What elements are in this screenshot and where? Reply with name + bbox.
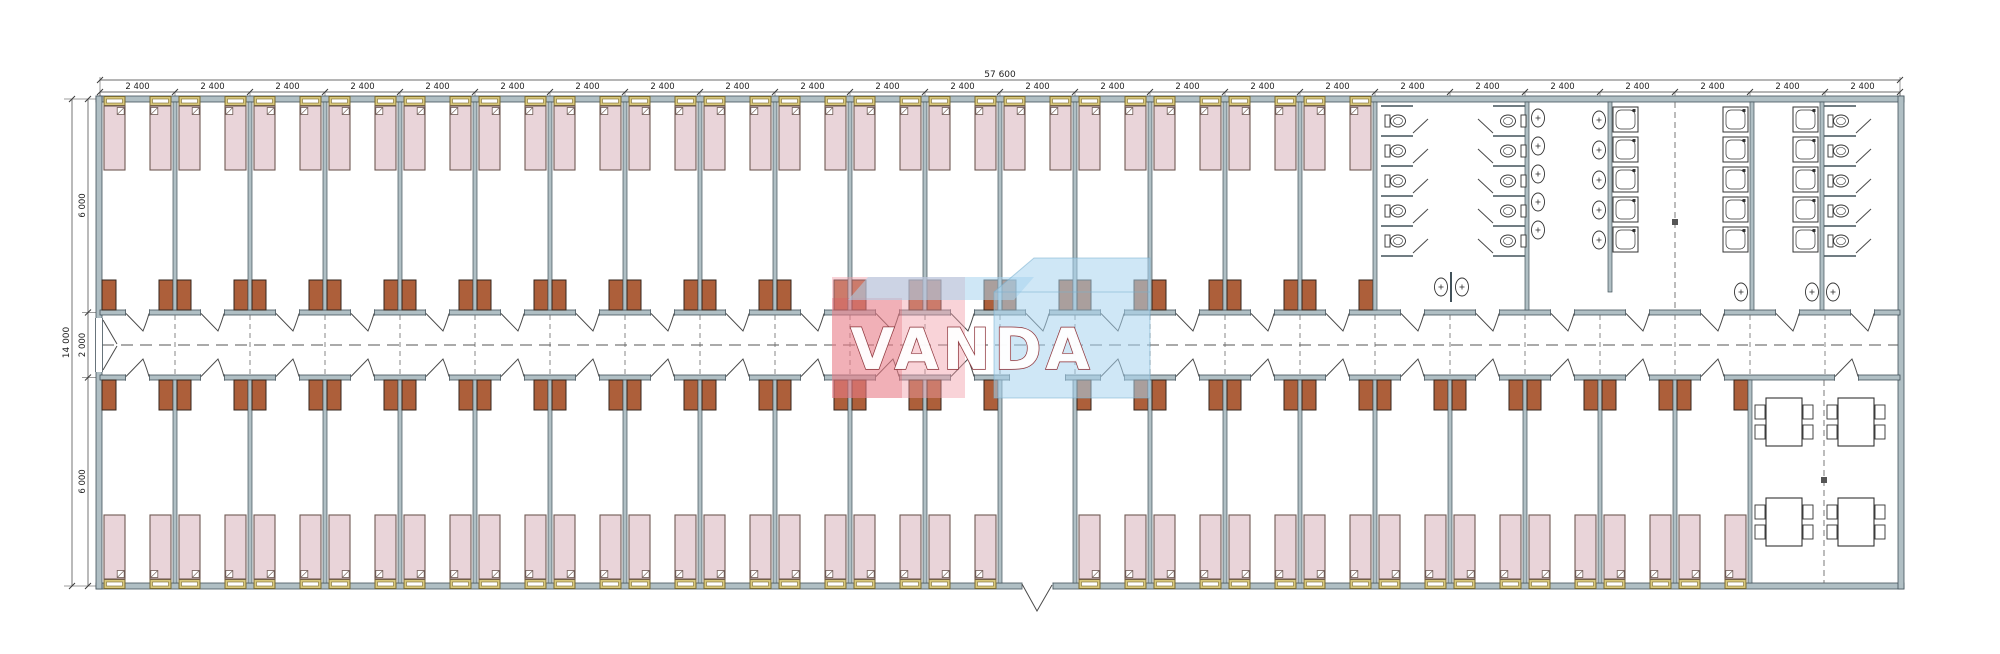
bed-icon bbox=[104, 515, 125, 579]
wardrobe-icon bbox=[552, 280, 566, 310]
washbasin-icon bbox=[1593, 201, 1606, 219]
shower-icon bbox=[1723, 167, 1748, 192]
bed-icon bbox=[554, 515, 575, 579]
stall-door-icon bbox=[1856, 119, 1871, 133]
bed-icon bbox=[450, 106, 471, 170]
partition-wall bbox=[173, 102, 177, 310]
bed-icon bbox=[975, 515, 996, 579]
bedroom-module bbox=[1377, 359, 1448, 589]
washbasin-icon bbox=[1532, 193, 1545, 211]
bed-icon bbox=[104, 106, 125, 170]
partition-wall bbox=[1298, 102, 1302, 310]
bedroom-module bbox=[402, 359, 473, 589]
bed-icon bbox=[179, 515, 200, 579]
shower-icon bbox=[1793, 197, 1818, 222]
bay-dimension-label: 2 400 bbox=[725, 82, 749, 92]
bed-icon bbox=[675, 515, 696, 579]
shower-icon bbox=[1613, 167, 1638, 192]
bed-icon bbox=[1154, 106, 1175, 170]
height-segment-dimension-label: 2 000 bbox=[78, 333, 88, 357]
bedroom-module bbox=[1298, 97, 1373, 332]
bed-icon bbox=[404, 515, 425, 579]
door-swing-icon bbox=[1326, 359, 1350, 381]
partition-wall bbox=[173, 380, 177, 583]
door-swing-icon bbox=[276, 359, 300, 381]
washbasin-icon bbox=[1456, 278, 1469, 296]
washbasin-icon bbox=[1806, 283, 1819, 301]
bed-icon bbox=[1604, 515, 1625, 579]
dining-table-icon bbox=[1755, 398, 1813, 446]
wardrobe-icon bbox=[777, 380, 791, 410]
bedroom-module bbox=[102, 97, 173, 332]
wardrobe-icon bbox=[702, 280, 716, 310]
bedroom-module bbox=[698, 97, 773, 332]
bed-icon bbox=[1650, 515, 1671, 579]
bedroom-module bbox=[702, 359, 773, 589]
bed-icon bbox=[1379, 515, 1400, 579]
wardrobe-icon bbox=[1452, 380, 1466, 410]
bedroom-module bbox=[327, 359, 398, 589]
bedroom-module bbox=[1302, 359, 1373, 589]
toilet-icon bbox=[1828, 115, 1849, 127]
overall-height-dimension-label: 14 000 bbox=[62, 326, 72, 358]
bed-icon bbox=[1229, 515, 1250, 579]
bed-icon bbox=[254, 515, 275, 579]
shower-icon bbox=[1793, 227, 1818, 252]
washbasin-icon bbox=[1532, 109, 1545, 127]
wardrobe-icon bbox=[1377, 380, 1391, 410]
bay-dimension-label: 2 400 bbox=[800, 82, 824, 92]
bed-icon bbox=[1079, 515, 1100, 579]
partition-wall bbox=[548, 102, 552, 310]
bedroom-module bbox=[1677, 359, 1748, 589]
wardrobe-icon bbox=[1227, 280, 1241, 310]
door-swing-icon bbox=[1401, 359, 1425, 381]
partition-wall bbox=[473, 102, 477, 310]
wardrobe-icon bbox=[459, 280, 473, 310]
bedroom-module bbox=[1452, 359, 1523, 589]
bedroom-module bbox=[552, 359, 623, 589]
bay-dimension-label: 2 400 bbox=[200, 82, 224, 92]
door-swing-icon bbox=[1626, 359, 1650, 381]
wardrobe-icon bbox=[1677, 380, 1691, 410]
exterior-wall-top bbox=[96, 96, 1904, 102]
partition-wall bbox=[773, 102, 777, 310]
floor-plan-drawing: 57 6002 4002 4002 4002 4002 4002 4002 40… bbox=[0, 0, 2000, 654]
wardrobe-icon bbox=[234, 280, 248, 310]
washbasin-icon bbox=[1532, 221, 1545, 239]
stall-door-icon bbox=[1478, 209, 1493, 223]
bedroom-module bbox=[173, 97, 248, 332]
bed-icon bbox=[1425, 515, 1446, 579]
washbasin-icon bbox=[1593, 171, 1606, 189]
bedroom-module bbox=[1152, 359, 1223, 589]
wardrobe-icon bbox=[477, 280, 491, 310]
stall-door-icon bbox=[1478, 149, 1493, 163]
dining-table-icon bbox=[1827, 398, 1885, 446]
shower-icon bbox=[1793, 107, 1818, 132]
toilet-icon bbox=[1385, 145, 1406, 157]
overall-width-dimension-label: 57 600 bbox=[984, 70, 1016, 80]
sanitary-block bbox=[1381, 102, 1875, 331]
bed-icon bbox=[1529, 515, 1550, 579]
wardrobe-icon bbox=[777, 280, 791, 310]
partition-wall bbox=[1223, 380, 1227, 583]
door-swing-icon bbox=[1476, 359, 1500, 381]
shower-icon bbox=[1613, 197, 1638, 222]
toilet-icon bbox=[1385, 115, 1406, 127]
chair-icon bbox=[1827, 405, 1837, 419]
wardrobe-icon bbox=[1209, 380, 1223, 410]
washbasin-icon bbox=[1593, 141, 1606, 159]
bedroom-module bbox=[1227, 359, 1298, 589]
door-swing-icon bbox=[351, 309, 375, 331]
door-swing-icon bbox=[801, 359, 825, 381]
stall-door-icon bbox=[1856, 179, 1871, 193]
bed-icon bbox=[600, 515, 621, 579]
door-swing-icon bbox=[1176, 359, 1200, 381]
door-swing-icon bbox=[651, 359, 675, 381]
partition-wall bbox=[473, 380, 477, 583]
stall-door-icon bbox=[1478, 239, 1493, 253]
dining-table-icon bbox=[1755, 498, 1813, 546]
bedroom-module bbox=[627, 359, 698, 589]
bay-dimension-label: 2 400 bbox=[500, 82, 524, 92]
toilet-icon bbox=[1828, 145, 1849, 157]
bay-dimension-label: 2 400 bbox=[1325, 82, 1349, 92]
wardrobe-icon bbox=[477, 380, 491, 410]
door-swing-icon bbox=[1551, 359, 1575, 381]
chair-icon bbox=[1827, 425, 1837, 439]
partition-wall bbox=[1673, 380, 1677, 583]
bay-dimension-label: 2 400 bbox=[1175, 82, 1199, 92]
door-swing-icon bbox=[576, 359, 600, 381]
bed-icon bbox=[375, 106, 396, 170]
stall-door-icon bbox=[1478, 119, 1493, 133]
top-bedrooms bbox=[102, 97, 1377, 332]
bed-icon bbox=[900, 515, 921, 579]
left-dimensions: 14 0006 0002 0006 000 bbox=[62, 96, 100, 589]
bay-dimension-label: 2 400 bbox=[350, 82, 374, 92]
wardrobe-icon bbox=[1227, 380, 1241, 410]
shower-icon bbox=[1793, 167, 1818, 192]
stall-door-icon bbox=[1413, 209, 1428, 223]
door-swing-icon bbox=[1776, 309, 1800, 331]
door-swing-icon bbox=[201, 359, 225, 381]
door-swing-icon bbox=[1851, 309, 1875, 331]
wardrobe-icon bbox=[1584, 380, 1598, 410]
wardrobe-icon bbox=[1359, 380, 1373, 410]
height-segment-dimension-label: 6 000 bbox=[78, 193, 88, 217]
toilet-icon bbox=[1385, 175, 1406, 187]
door-swing-icon bbox=[1326, 309, 1350, 331]
door-swing-icon bbox=[801, 309, 825, 331]
bed-icon bbox=[1200, 515, 1221, 579]
partition-wall bbox=[248, 102, 252, 310]
washbasin-icon bbox=[1827, 283, 1840, 301]
wardrobe-icon bbox=[177, 380, 191, 410]
bed-icon bbox=[1454, 515, 1475, 579]
wardrobe-icon bbox=[1509, 380, 1523, 410]
dining-table-icon bbox=[1827, 498, 1885, 546]
door-swing-icon bbox=[576, 309, 600, 331]
bed-icon bbox=[225, 106, 246, 170]
bedroom-module bbox=[1602, 359, 1673, 589]
bed-icon bbox=[750, 515, 771, 579]
washbasin-icon bbox=[1593, 111, 1606, 129]
bay-dimension-label: 2 400 bbox=[275, 82, 299, 92]
stall-door-icon bbox=[1413, 239, 1428, 253]
shower-icon bbox=[1613, 227, 1638, 252]
wardrobe-icon bbox=[1734, 380, 1748, 410]
bed-icon bbox=[254, 106, 275, 170]
bed-icon bbox=[479, 515, 500, 579]
wardrobe-icon bbox=[552, 380, 566, 410]
partition-wall bbox=[398, 380, 402, 583]
door-swing-icon bbox=[1401, 309, 1425, 331]
bed-icon bbox=[929, 106, 950, 170]
door-swing-icon bbox=[501, 359, 525, 381]
door-swing-icon bbox=[1476, 309, 1500, 331]
partition-wall bbox=[998, 380, 1002, 583]
chair-icon bbox=[1755, 405, 1765, 419]
bay-dimension-label: 2 400 bbox=[1250, 82, 1274, 92]
partition-wall bbox=[323, 102, 327, 310]
toilet-icon bbox=[1828, 205, 1849, 217]
partition-wall bbox=[698, 380, 702, 583]
wardrobe-icon bbox=[1302, 280, 1316, 310]
shower-icon bbox=[1613, 137, 1638, 162]
stall-door-icon bbox=[1413, 179, 1428, 193]
bed-icon bbox=[1200, 106, 1221, 170]
wardrobe-icon bbox=[384, 380, 398, 410]
door-swing-icon bbox=[276, 309, 300, 331]
wardrobe-icon bbox=[1284, 280, 1298, 310]
partition-wall bbox=[1148, 380, 1152, 583]
toilet-icon bbox=[1385, 235, 1406, 247]
chair-icon bbox=[1803, 405, 1813, 419]
bay-dimension-label: 2 400 bbox=[1100, 82, 1124, 92]
bed-icon bbox=[779, 106, 800, 170]
chair-icon bbox=[1755, 425, 1765, 439]
partition-wall bbox=[1523, 380, 1527, 583]
washbasin-icon bbox=[1532, 165, 1545, 183]
bedroom-module bbox=[477, 359, 548, 589]
shower-icon bbox=[1723, 197, 1748, 222]
bed-icon bbox=[1125, 515, 1146, 579]
partition-wall bbox=[248, 380, 252, 583]
wardrobe-icon bbox=[759, 280, 773, 310]
column-marker bbox=[1821, 477, 1827, 483]
height-segment-dimension-label: 6 000 bbox=[78, 469, 88, 493]
shower-icon bbox=[1723, 107, 1748, 132]
partition-wall bbox=[1750, 102, 1754, 310]
washbasin-icon bbox=[1593, 231, 1606, 249]
bed-icon bbox=[1004, 106, 1025, 170]
wardrobe-icon bbox=[609, 280, 623, 310]
bed-icon bbox=[825, 515, 846, 579]
bed-icon bbox=[854, 515, 875, 579]
bed-icon bbox=[1575, 515, 1596, 579]
bay-dimension-label: 2 400 bbox=[1550, 82, 1574, 92]
toilet-icon bbox=[1501, 235, 1527, 247]
door-swing-icon bbox=[426, 359, 450, 381]
bed-icon bbox=[329, 106, 350, 170]
washbasin-icon bbox=[1532, 137, 1545, 155]
door-swing-icon bbox=[726, 359, 750, 381]
bed-icon bbox=[225, 515, 246, 579]
washbasin-icon bbox=[1735, 283, 1748, 301]
bay-dimension-label: 2 400 bbox=[1850, 82, 1874, 92]
bed-icon bbox=[525, 106, 546, 170]
wardrobe-icon bbox=[684, 280, 698, 310]
wardrobe-icon bbox=[534, 380, 548, 410]
bed-icon bbox=[1304, 106, 1325, 170]
bed-icon bbox=[854, 106, 875, 170]
partition-wall bbox=[1073, 380, 1077, 583]
shower-icon bbox=[1723, 137, 1748, 162]
bed-icon bbox=[179, 106, 200, 170]
entrance-lobby bbox=[1010, 374, 1066, 611]
bay-dimension-label: 2 400 bbox=[425, 82, 449, 92]
bed-icon bbox=[600, 106, 621, 170]
toilet-icon bbox=[1501, 115, 1527, 127]
wardrobe-icon bbox=[252, 380, 266, 410]
wardrobe-icon bbox=[609, 380, 623, 410]
partition-wall bbox=[623, 102, 627, 310]
chair-icon bbox=[1875, 425, 1885, 439]
bed-icon bbox=[900, 106, 921, 170]
partition-wall bbox=[1820, 102, 1824, 310]
bay-dimension-label: 2 400 bbox=[125, 82, 149, 92]
door-swing-icon bbox=[1176, 309, 1200, 331]
floor-plan-canvas: 57 6002 4002 4002 4002 4002 4002 4002 40… bbox=[0, 0, 2000, 654]
stall-door-icon bbox=[1856, 209, 1871, 223]
bay-dimension-label: 2 400 bbox=[575, 82, 599, 92]
door-swing-icon bbox=[1551, 309, 1575, 331]
watermark-text: VANDA bbox=[850, 317, 1094, 383]
wardrobe-icon bbox=[402, 280, 416, 310]
bedroom-module bbox=[177, 359, 248, 589]
bed-icon bbox=[1500, 515, 1521, 579]
partition-wall bbox=[1448, 380, 1452, 583]
bedroom-module bbox=[623, 97, 698, 332]
partition-wall bbox=[698, 102, 702, 310]
wardrobe-icon bbox=[384, 280, 398, 310]
bay-dimension-label: 2 400 bbox=[1025, 82, 1049, 92]
bed-icon bbox=[554, 106, 575, 170]
bed-icon bbox=[1350, 515, 1371, 579]
wardrobe-icon bbox=[102, 380, 116, 410]
wardrobe-icon bbox=[1359, 280, 1373, 310]
door-swing-icon bbox=[126, 359, 150, 381]
wardrobe-icon bbox=[702, 380, 716, 410]
partition-wall bbox=[1598, 380, 1602, 583]
partition-wall bbox=[623, 380, 627, 583]
chair-icon bbox=[1875, 405, 1885, 419]
bed-icon bbox=[704, 515, 725, 579]
bed-icon bbox=[1679, 515, 1700, 579]
bed-icon bbox=[150, 515, 171, 579]
bed-icon bbox=[329, 515, 350, 579]
chair-icon bbox=[1803, 525, 1813, 539]
door-swing-icon bbox=[1251, 309, 1275, 331]
bedroom-module bbox=[323, 97, 398, 332]
stall-door-icon bbox=[1413, 119, 1428, 133]
bay-dimension-label: 2 400 bbox=[950, 82, 974, 92]
stall-door-icon bbox=[1478, 179, 1493, 193]
partition-wall bbox=[1223, 102, 1227, 310]
bed-icon bbox=[525, 515, 546, 579]
wardrobe-icon bbox=[627, 380, 641, 410]
bed-icon bbox=[1229, 106, 1250, 170]
bay-dimension-label: 2 400 bbox=[1400, 82, 1424, 92]
chair-icon bbox=[1875, 505, 1885, 519]
bedroom-module bbox=[473, 97, 548, 332]
door-swing-icon bbox=[126, 309, 150, 331]
bed-icon bbox=[1725, 515, 1746, 579]
door-swing-icon bbox=[651, 309, 675, 331]
wardrobe-icon bbox=[309, 280, 323, 310]
wardrobe-icon bbox=[177, 280, 191, 310]
bed-icon bbox=[1350, 106, 1371, 170]
wardrobe-icon bbox=[1152, 380, 1166, 410]
chair-icon bbox=[1755, 525, 1765, 539]
bed-icon bbox=[1079, 106, 1100, 170]
bed-icon bbox=[929, 515, 950, 579]
wardrobe-icon bbox=[234, 380, 248, 410]
bed-icon bbox=[629, 106, 650, 170]
wardrobe-icon bbox=[1152, 280, 1166, 310]
bed-icon bbox=[1125, 106, 1146, 170]
bedroom-module bbox=[1527, 359, 1598, 589]
chair-icon bbox=[1827, 525, 1837, 539]
door-swing-icon bbox=[726, 309, 750, 331]
wardrobe-icon bbox=[402, 380, 416, 410]
wardrobe-icon bbox=[1209, 280, 1223, 310]
bed-icon bbox=[675, 106, 696, 170]
partition-wall bbox=[1298, 380, 1302, 583]
bedroom-module bbox=[1223, 97, 1298, 332]
partition-wall bbox=[398, 102, 402, 310]
wardrobe-icon bbox=[159, 380, 173, 410]
bed-icon bbox=[750, 106, 771, 170]
exterior-wall-right bbox=[1898, 96, 1904, 589]
door-swing-icon bbox=[351, 359, 375, 381]
bedroom-module bbox=[398, 97, 473, 332]
bed-icon bbox=[704, 106, 725, 170]
chair-icon bbox=[1875, 525, 1885, 539]
wardrobe-icon bbox=[1602, 380, 1616, 410]
bed-icon bbox=[629, 515, 650, 579]
wardrobe-icon bbox=[1659, 380, 1673, 410]
door-swing-icon bbox=[1626, 309, 1650, 331]
bed-icon bbox=[1275, 515, 1296, 579]
wardrobe-icon bbox=[534, 280, 548, 310]
top-bay-dimensions: 2 4002 4002 4002 4002 4002 4002 4002 400… bbox=[97, 82, 1903, 97]
bed-icon bbox=[1275, 106, 1296, 170]
bedroom-module bbox=[102, 359, 173, 589]
bay-dimension-label: 2 400 bbox=[875, 82, 899, 92]
wardrobe-icon bbox=[252, 280, 266, 310]
bedroom-module bbox=[252, 359, 323, 589]
wardrobe-icon bbox=[1527, 380, 1541, 410]
door-swing-icon bbox=[501, 309, 525, 331]
door-swing-icon bbox=[201, 309, 225, 331]
partition-wall bbox=[1748, 380, 1752, 583]
exterior-wall-bottom bbox=[96, 583, 1904, 589]
bed-icon bbox=[375, 515, 396, 579]
